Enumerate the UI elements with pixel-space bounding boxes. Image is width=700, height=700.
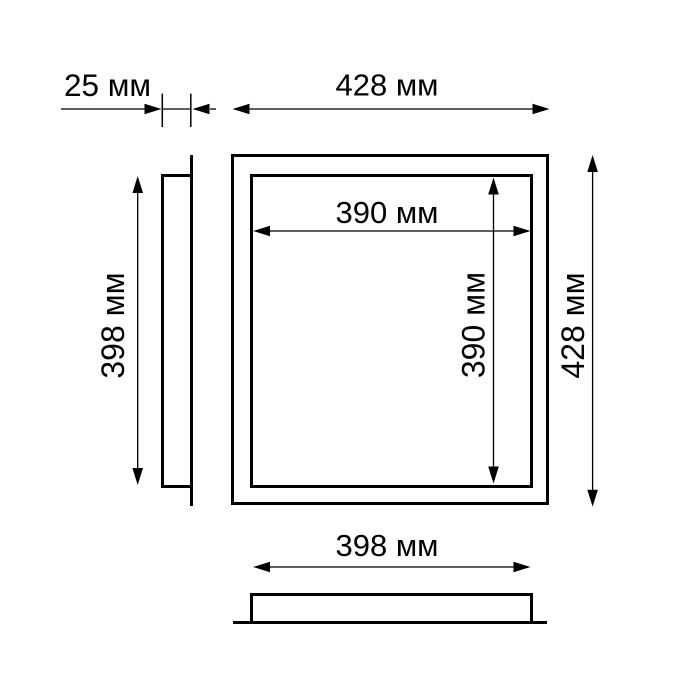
svg-text:428 мм: 428 мм (336, 68, 439, 103)
svg-text:390 мм: 390 мм (336, 195, 439, 230)
svg-text:398 мм: 398 мм (95, 272, 131, 378)
svg-text:428 мм: 428 мм (555, 272, 591, 378)
svg-text:398 мм: 398 мм (336, 528, 439, 563)
svg-text:390 мм: 390 мм (456, 272, 492, 378)
svg-text:25 мм: 25 мм (64, 67, 151, 103)
